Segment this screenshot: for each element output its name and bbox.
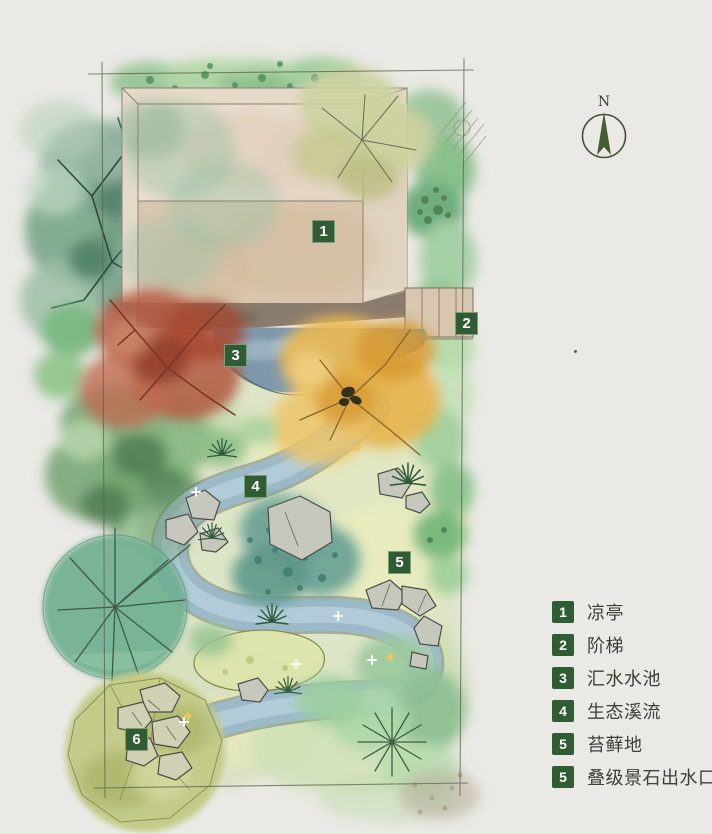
plan-marker-steps: 2 [455,312,478,335]
north-arrow-icon [580,109,628,161]
legend-item-pavilion: 1 凉亭 [552,601,712,623]
legend-label: 汇水水池 [587,665,661,691]
legend-label: 生态溪流 [587,698,661,724]
plan-marker-stream: 4 [244,475,267,498]
legend-item-steps: 2 阶梯 [552,634,712,656]
legend-label: 凉亭 [587,599,624,625]
legend-badge: 1 [552,601,574,623]
plan-marker-outlet: 6 [125,728,148,751]
legend-badge: 2 [552,634,574,656]
north-label: N [580,95,628,109]
legend-badge: 4 [552,700,574,722]
legend-label: 叠级景石出水口 [587,764,712,790]
ink-speck [574,350,577,353]
plan-marker-pool: 3 [224,344,247,367]
legend-badge: 3 [552,667,574,689]
garden-plan-canvas: 1 2 3 4 5 6 N 1 凉亭 2 阶梯 3 汇水水池 4 生态溪流 5 … [0,0,712,834]
legend-item-outlet: 5 叠级景石出水口 [552,766,712,788]
olive-tree-top-right [292,67,434,200]
legend-item-pool: 3 汇水水池 [552,667,712,689]
plan-marker-moss: 5 [388,551,411,574]
red-maple-tree [80,290,245,428]
legend-badge: 5 [552,733,574,755]
compass: N [580,95,628,166]
plan-marker-pavilion: 1 [312,220,335,243]
legend-item-moss: 5 苔藓地 [552,733,712,755]
legend: 1 凉亭 2 阶梯 3 汇水水池 4 生态溪流 5 苔藓地 5 叠级景石出水口 [552,601,712,799]
legend-label: 苔藓地 [587,731,643,757]
legend-label: 阶梯 [587,632,624,658]
legend-badge: 5 [552,766,574,788]
legend-item-stream: 4 生态溪流 [552,700,712,722]
